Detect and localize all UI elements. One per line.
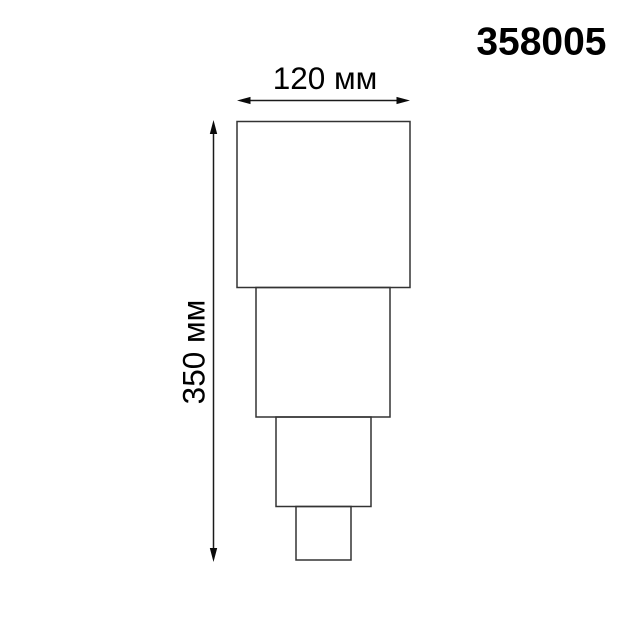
svg-text:120 мм: 120 мм [273,60,378,96]
svg-text:350 мм: 350 мм [176,300,212,405]
svg-text:358005: 358005 [476,21,606,64]
